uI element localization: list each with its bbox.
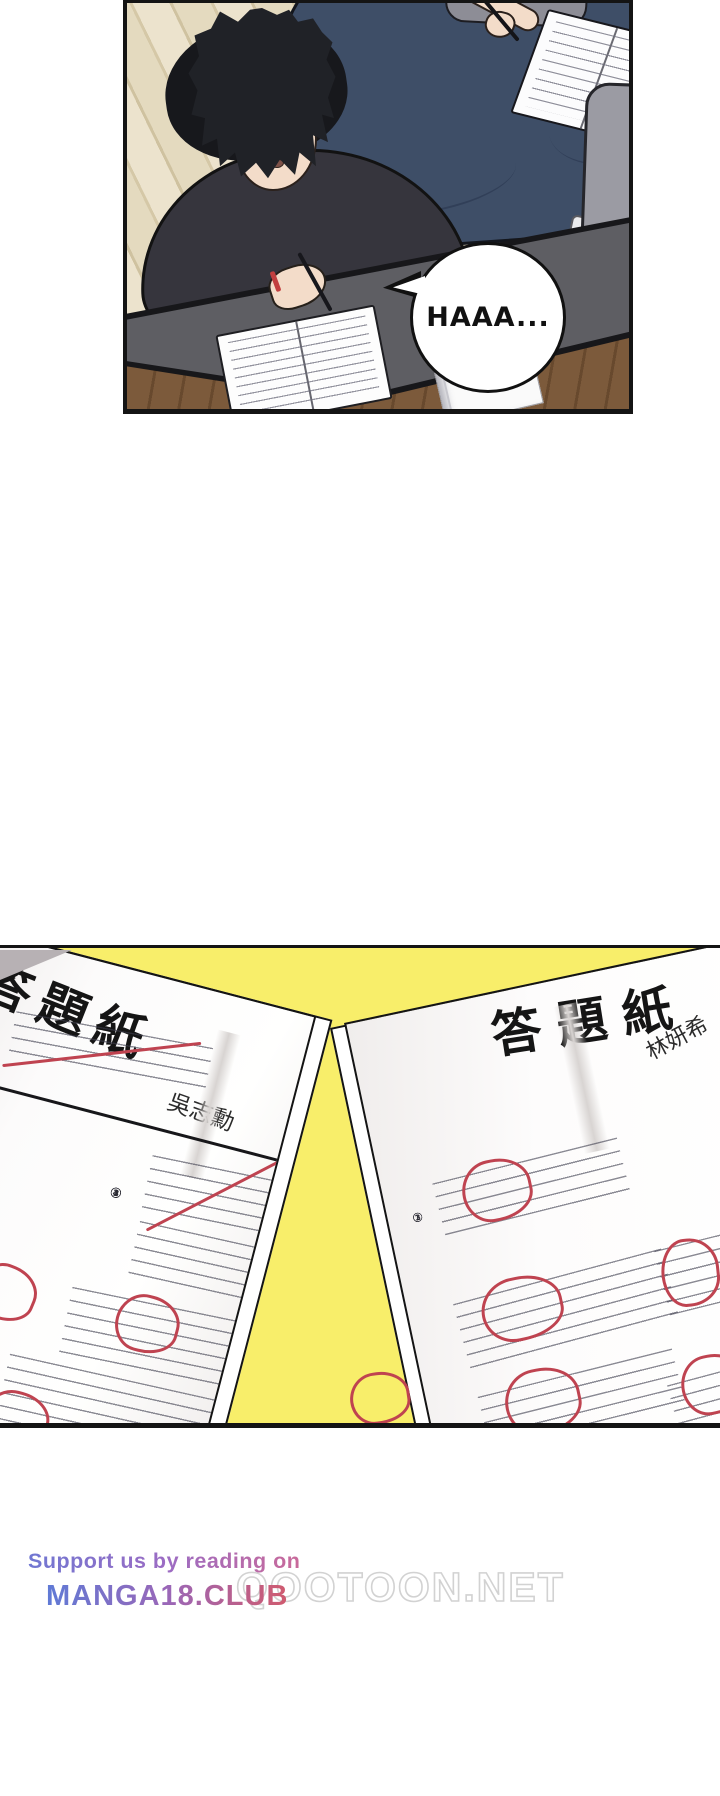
comic-page: HAAA... 答題紙 吳志勳 ① ② ③ ④: [0, 0, 720, 1796]
red-circle-mark: [499, 1361, 587, 1428]
answer-sheet-left: 答題紙 吳志勳 ① ② ③ ④: [0, 945, 316, 1428]
question-number: ③: [411, 1209, 426, 1228]
speech-bubble-text: HAAA...: [426, 302, 550, 333]
panel-study-room: HAAA...: [123, 0, 633, 414]
panel-answer-sheets: 答題紙 吳志勳 ① ② ③ ④ 答題紙 林妍希: [0, 945, 720, 1428]
speech-bubble: HAAA...: [410, 242, 566, 393]
watermark-support-text: Support us by reading on: [28, 1549, 300, 1574]
watermark-site-manga18: MANGA18.CLUB: [46, 1580, 288, 1613]
